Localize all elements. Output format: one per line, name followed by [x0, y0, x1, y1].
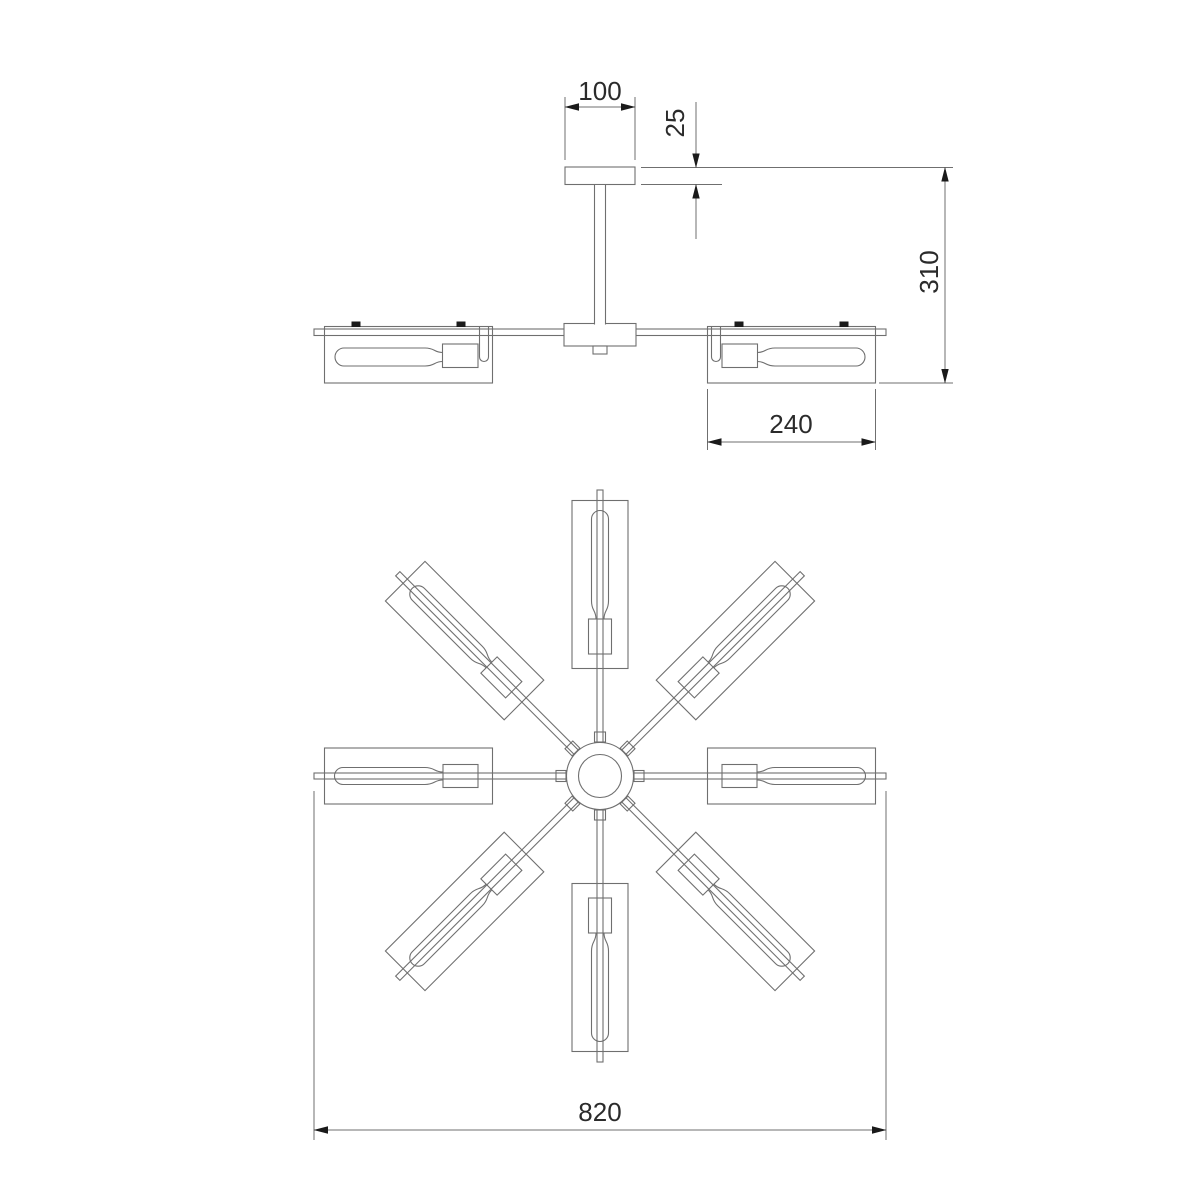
drawing-canvas: 100 25 310 240: [0, 0, 1200, 1200]
dim-overall-height: 310: [879, 168, 953, 384]
screw: [840, 322, 849, 328]
plan-view: 820: [314, 490, 886, 1140]
dim-shade-length: 240: [708, 389, 876, 450]
stem-fill: [595, 185, 605, 325]
plan-arm: [572, 490, 628, 744]
extension-lines: [565, 97, 635, 160]
lamp-socket-right: [722, 344, 758, 368]
center-hub: [564, 324, 636, 347]
plan-arm: [572, 808, 628, 1062]
dim-label-overall-height: 310: [914, 250, 944, 293]
dim-label-shade-length: 240: [769, 409, 812, 439]
plan-arm: [314, 748, 568, 804]
plan-arm: [603, 554, 822, 773]
lamp-socket-left: [443, 344, 479, 368]
screw: [735, 322, 744, 328]
shade-left-bracket: [480, 327, 489, 362]
dim-canopy-width: 100: [565, 76, 635, 160]
plan-arm: [378, 554, 597, 773]
side-view: 100 25 310 240: [314, 76, 953, 450]
plan-center-hub-outer: [567, 743, 634, 810]
ceiling-canopy: [565, 167, 635, 185]
dim-canopy-height: 25: [641, 102, 953, 239]
plan-arm: [632, 748, 886, 804]
shade-right-bracket: [712, 327, 721, 362]
reference-lines: [641, 168, 953, 185]
lamp-tube-left: [335, 348, 443, 366]
lamp-tube-right: [758, 348, 866, 366]
plan-arm: [378, 779, 597, 998]
screw: [457, 322, 466, 328]
screw: [352, 322, 361, 328]
hub-tab: [593, 346, 607, 354]
plan-arm: [603, 779, 822, 998]
dim-label-overall-width: 820: [578, 1097, 621, 1127]
technical-drawing: 100 25 310 240: [0, 0, 1200, 1200]
dim-label-canopy-width: 100: [578, 76, 621, 106]
dim-label-canopy-height: 25: [660, 109, 690, 138]
